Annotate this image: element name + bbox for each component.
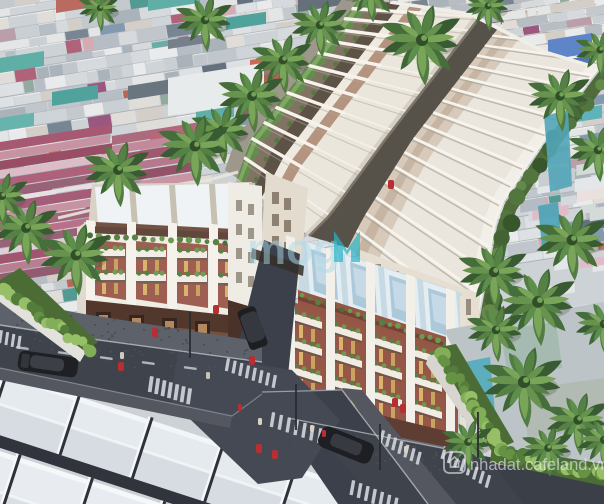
svg-text:nhadat.cafeland.vn: nhadat.cafeland.vn (470, 456, 604, 474)
svg-text:mog: mog (247, 225, 340, 274)
